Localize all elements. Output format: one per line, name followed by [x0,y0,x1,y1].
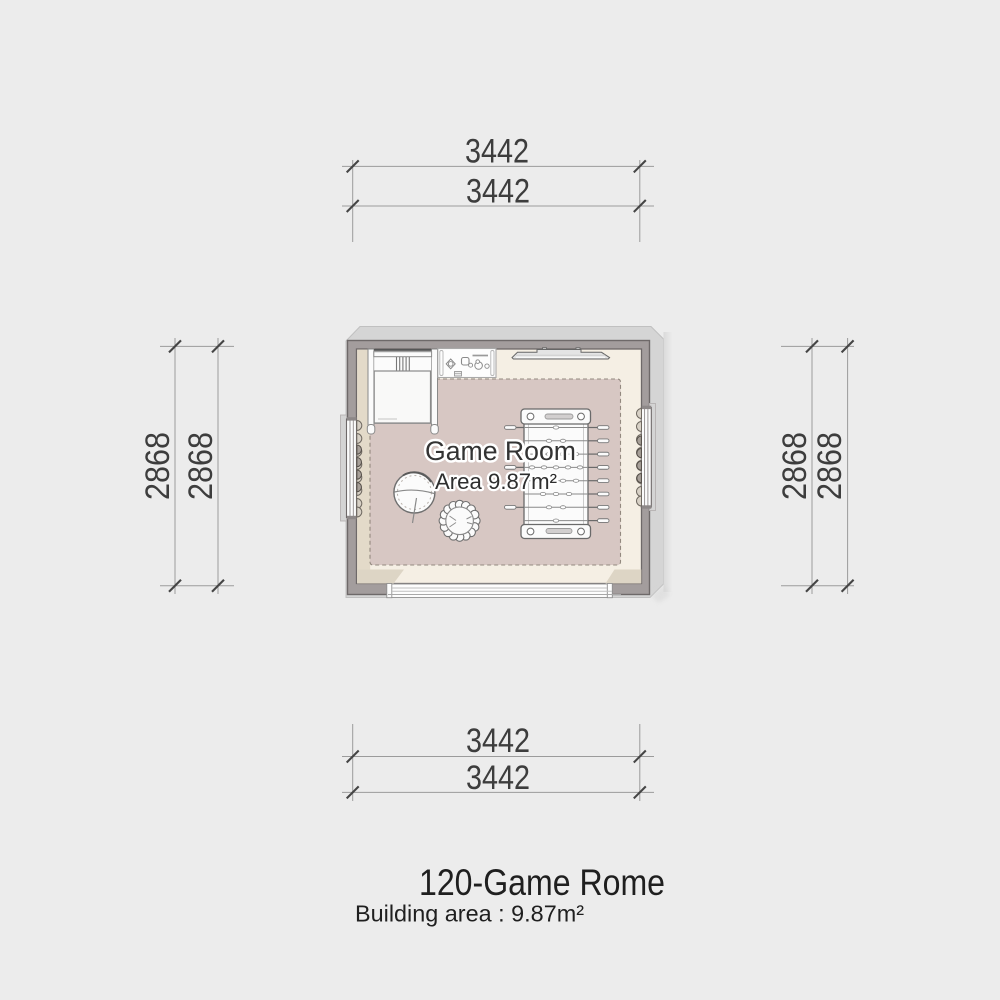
svg-text:2868: 2868 [139,432,177,500]
svg-text:2868: 2868 [776,432,814,500]
svg-text:Game Room: Game Room [425,436,576,466]
svg-text:120-Game Rome: 120-Game Rome [419,862,665,903]
svg-text:3442: 3442 [465,133,529,171]
svg-text:2868: 2868 [811,432,849,500]
svg-text:Area 9.87m²: Area 9.87m² [435,469,557,494]
svg-text:3442: 3442 [466,173,530,211]
svg-text:3442: 3442 [466,722,530,760]
svg-text:3442: 3442 [466,759,530,797]
svg-text:2868: 2868 [182,432,220,500]
svg-text:Building area : 9.87m²: Building area : 9.87m² [355,901,584,927]
